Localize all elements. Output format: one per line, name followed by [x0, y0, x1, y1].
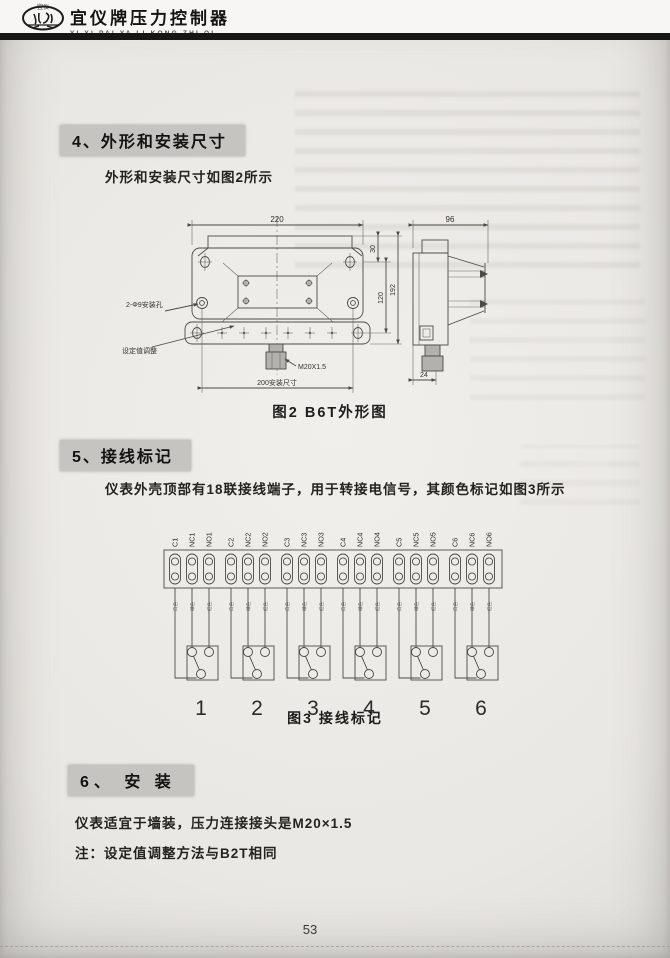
switch-arm: [474, 656, 480, 670]
terminal-label: C6: [451, 538, 460, 547]
terminal-label: NO5: [429, 532, 438, 547]
terminal-screw: [373, 558, 380, 565]
terminal-label: C5: [395, 538, 404, 547]
contact-common: [421, 670, 430, 679]
terminal-screw: [468, 573, 475, 580]
terminal: [299, 554, 310, 584]
dim-height-label: 192: [390, 284, 397, 296]
wire-color-mark: 红色: [374, 601, 380, 611]
figure3-wiring-diagram: C1白色NC1绿色NO1红色1C2白色NC2绿色NO2红色2C3白色NC3绿色N…: [150, 518, 520, 723]
terminal: [394, 554, 405, 584]
terminal-label: NO2: [261, 532, 270, 547]
mount-hole-callout: 2-Φ9安装孔: [126, 300, 163, 309]
wire-color-mark: 绿色: [357, 601, 363, 611]
wire-color-mark: 红色: [318, 601, 324, 611]
terminal: [204, 554, 215, 584]
terminal-screw: [429, 558, 436, 565]
display-window: [238, 276, 317, 308]
side-top-protrusion: [422, 240, 448, 253]
wire-color-mark: 红色: [206, 601, 212, 611]
contact-nc: [468, 648, 477, 657]
contact-nc: [300, 648, 309, 657]
switch-arm: [418, 656, 424, 670]
terminal-screw: [171, 558, 178, 565]
logo-text: 宜仪: [37, 3, 49, 11]
terminal: [316, 554, 327, 584]
terminal-screw: [261, 573, 268, 580]
scanned-manual-page: 宜仪 宜仪牌压力控制器 YI YI PAI YA LI KONG ZHI QI …: [0, 0, 670, 958]
terminal-screw: [356, 558, 363, 565]
terminal-label: NC6: [468, 533, 477, 547]
contact-no: [317, 648, 326, 657]
terminal-screw: [227, 573, 234, 580]
terminal: [428, 554, 439, 584]
contact-common: [309, 670, 318, 679]
terminal-label: NO1: [205, 532, 214, 547]
terminal-screw: [339, 558, 346, 565]
terminal-screw: [244, 558, 251, 565]
wire-color-mark: 白色: [284, 601, 291, 611]
wire-color-mark: 白色: [452, 601, 459, 611]
wire-color-mark: 白色: [340, 601, 347, 611]
dim-top-label: 30: [370, 245, 377, 253]
terminal-label: C4: [339, 538, 348, 547]
section-4-body: 外形和安装尺寸如图2所示: [105, 166, 273, 186]
wire-common: [231, 588, 253, 678]
terminal-screw: [485, 558, 492, 565]
terminal: [260, 554, 271, 584]
wire-color-mark: 绿色: [189, 601, 195, 611]
contact-no: [429, 648, 438, 657]
terminal-screw: [451, 558, 458, 565]
switch-arm: [306, 656, 312, 670]
terminal-strip: [185, 322, 370, 344]
terminal-screw: [395, 558, 402, 565]
terminal-screw: [188, 558, 195, 565]
switch-arm: [250, 656, 256, 670]
dim-mid-height-label: 120: [378, 292, 385, 304]
terminal: [372, 554, 383, 584]
section-6-body-2: 注：设定值调整方法与B2T相同: [75, 842, 278, 862]
contact-common: [477, 670, 486, 679]
switch-arm: [194, 656, 200, 670]
wire-color-mark: 白色: [396, 601, 403, 611]
terminal-screw: [261, 558, 268, 565]
connector-hex: [266, 352, 286, 369]
section-4-heading: 4、外形和安装尺寸: [60, 125, 245, 156]
terminal: [226, 554, 237, 584]
terminal-label: NO3: [317, 532, 326, 547]
section-5-body: 仪表外壳顶部有18联接线端子，用于转接电信号，其颜色标记如图3所示: [105, 478, 566, 498]
terminal-screw: [395, 573, 402, 580]
terminal: [467, 554, 478, 584]
mount-hole-left: [197, 298, 208, 309]
wire-color-mark: 红色: [430, 601, 436, 611]
terminal-label: NC1: [188, 533, 197, 547]
contact-nc: [412, 648, 421, 657]
terminal: [411, 554, 422, 584]
section-5-heading: 5、接线标记: [60, 440, 191, 471]
contact-nc: [244, 648, 253, 657]
mount-hole-right: [348, 298, 359, 309]
terminal-label: NC5: [412, 533, 421, 547]
top-cover: [208, 236, 352, 248]
wire-color-mark: 绿色: [245, 601, 251, 611]
page-number: 53: [0, 922, 620, 937]
wire-color-mark: 绿色: [469, 601, 475, 611]
header-strip: 宜仪 宜仪牌压力控制器 YI YI PAI YA LI KONG ZHI QI: [0, 0, 670, 33]
terminal: [187, 554, 198, 584]
terminal-label: C1: [171, 538, 180, 547]
wire-common: [343, 588, 365, 678]
connector-neck-side: [425, 345, 440, 356]
section-6-heading: 6、 安 装: [68, 765, 194, 796]
terminal-label: NO4: [373, 532, 382, 547]
terminal-screw: [283, 573, 290, 580]
wire-color-mark: 绿色: [413, 601, 419, 611]
setpoint-callout: 设定值调整: [122, 346, 157, 355]
terminal-screw: [317, 573, 324, 580]
terminal: [338, 554, 349, 584]
terminal: [484, 554, 495, 584]
wire-color-mark: 绿色: [301, 601, 307, 611]
terminal-screw: [451, 573, 458, 580]
dim-depth-label: 96: [446, 215, 455, 224]
wire-color-mark: 白色: [228, 601, 235, 611]
terminal-screw: [227, 558, 234, 565]
dim-mount-label: 200安装尺寸: [257, 378, 297, 387]
terminal-screw: [205, 573, 212, 580]
section-6-body-1: 仪表适宜于墙装，压力连接接头是M20×1.5: [75, 812, 352, 832]
figure2-outline-drawing: 220: [110, 203, 510, 403]
contact-no: [485, 648, 494, 657]
contact-common: [253, 670, 262, 679]
figure2-caption: 图2 B6T外形图: [130, 401, 530, 422]
terminal: [355, 554, 366, 584]
terminal-screw: [373, 573, 380, 580]
terminal-screw: [283, 558, 290, 565]
terminal-screw: [244, 573, 251, 580]
terminal: [170, 554, 181, 584]
terminal-screw: [188, 573, 195, 580]
wire-color-mark: 红色: [486, 601, 492, 611]
terminal: [450, 554, 461, 584]
terminal-label: NC2: [244, 533, 253, 547]
terminal-screw: [339, 573, 346, 580]
footer-dashed-line: [0, 946, 670, 947]
wire-color-mark: 白色: [172, 601, 179, 611]
terminal-screw: [300, 558, 307, 565]
terminal-screw: [356, 573, 363, 580]
figure3-caption: 图3 接线标记: [160, 708, 510, 728]
terminal-screw: [171, 573, 178, 580]
terminal-label: C2: [227, 538, 236, 547]
thread-label: M20X1.5: [298, 364, 326, 371]
terminal-screw: [205, 558, 212, 565]
terminal-screw: [429, 573, 436, 580]
contact-no: [373, 648, 382, 657]
wire-color-mark: 红色: [262, 601, 268, 611]
contact-common: [365, 670, 374, 679]
switch-arm: [362, 656, 368, 670]
terminal-screw: [412, 573, 419, 580]
terminal-screw: [485, 573, 492, 580]
connector-hex-side: [422, 356, 443, 371]
wire-common: [399, 588, 421, 678]
contact-no: [205, 648, 214, 657]
wire-common: [287, 588, 309, 678]
terminal-label: NC3: [300, 533, 309, 547]
terminal-screw: [412, 558, 419, 565]
body-side: [413, 253, 448, 345]
dim-bottom-label: 24: [420, 372, 428, 379]
contact-nc: [356, 648, 365, 657]
terminal-screw: [317, 558, 324, 565]
wire-common: [455, 588, 477, 678]
terminal-screw: [300, 573, 307, 580]
contact-common: [197, 670, 206, 679]
terminal-screw: [468, 558, 475, 565]
terminal: [243, 554, 254, 584]
connector-neck: [269, 344, 283, 352]
contact-nc: [188, 648, 197, 657]
terminal-label: NC4: [356, 533, 365, 547]
dim-width-label: 220: [270, 215, 284, 224]
terminal-label: C3: [283, 538, 292, 547]
terminal-label: NO6: [485, 532, 494, 547]
wire-common: [175, 588, 197, 678]
header-divider-bar: [0, 33, 670, 40]
brand-title: 宜仪牌压力控制器: [70, 4, 230, 29]
terminal: [282, 554, 293, 584]
contact-no: [261, 648, 270, 657]
brand-logo-icon: 宜仪: [20, 2, 66, 32]
